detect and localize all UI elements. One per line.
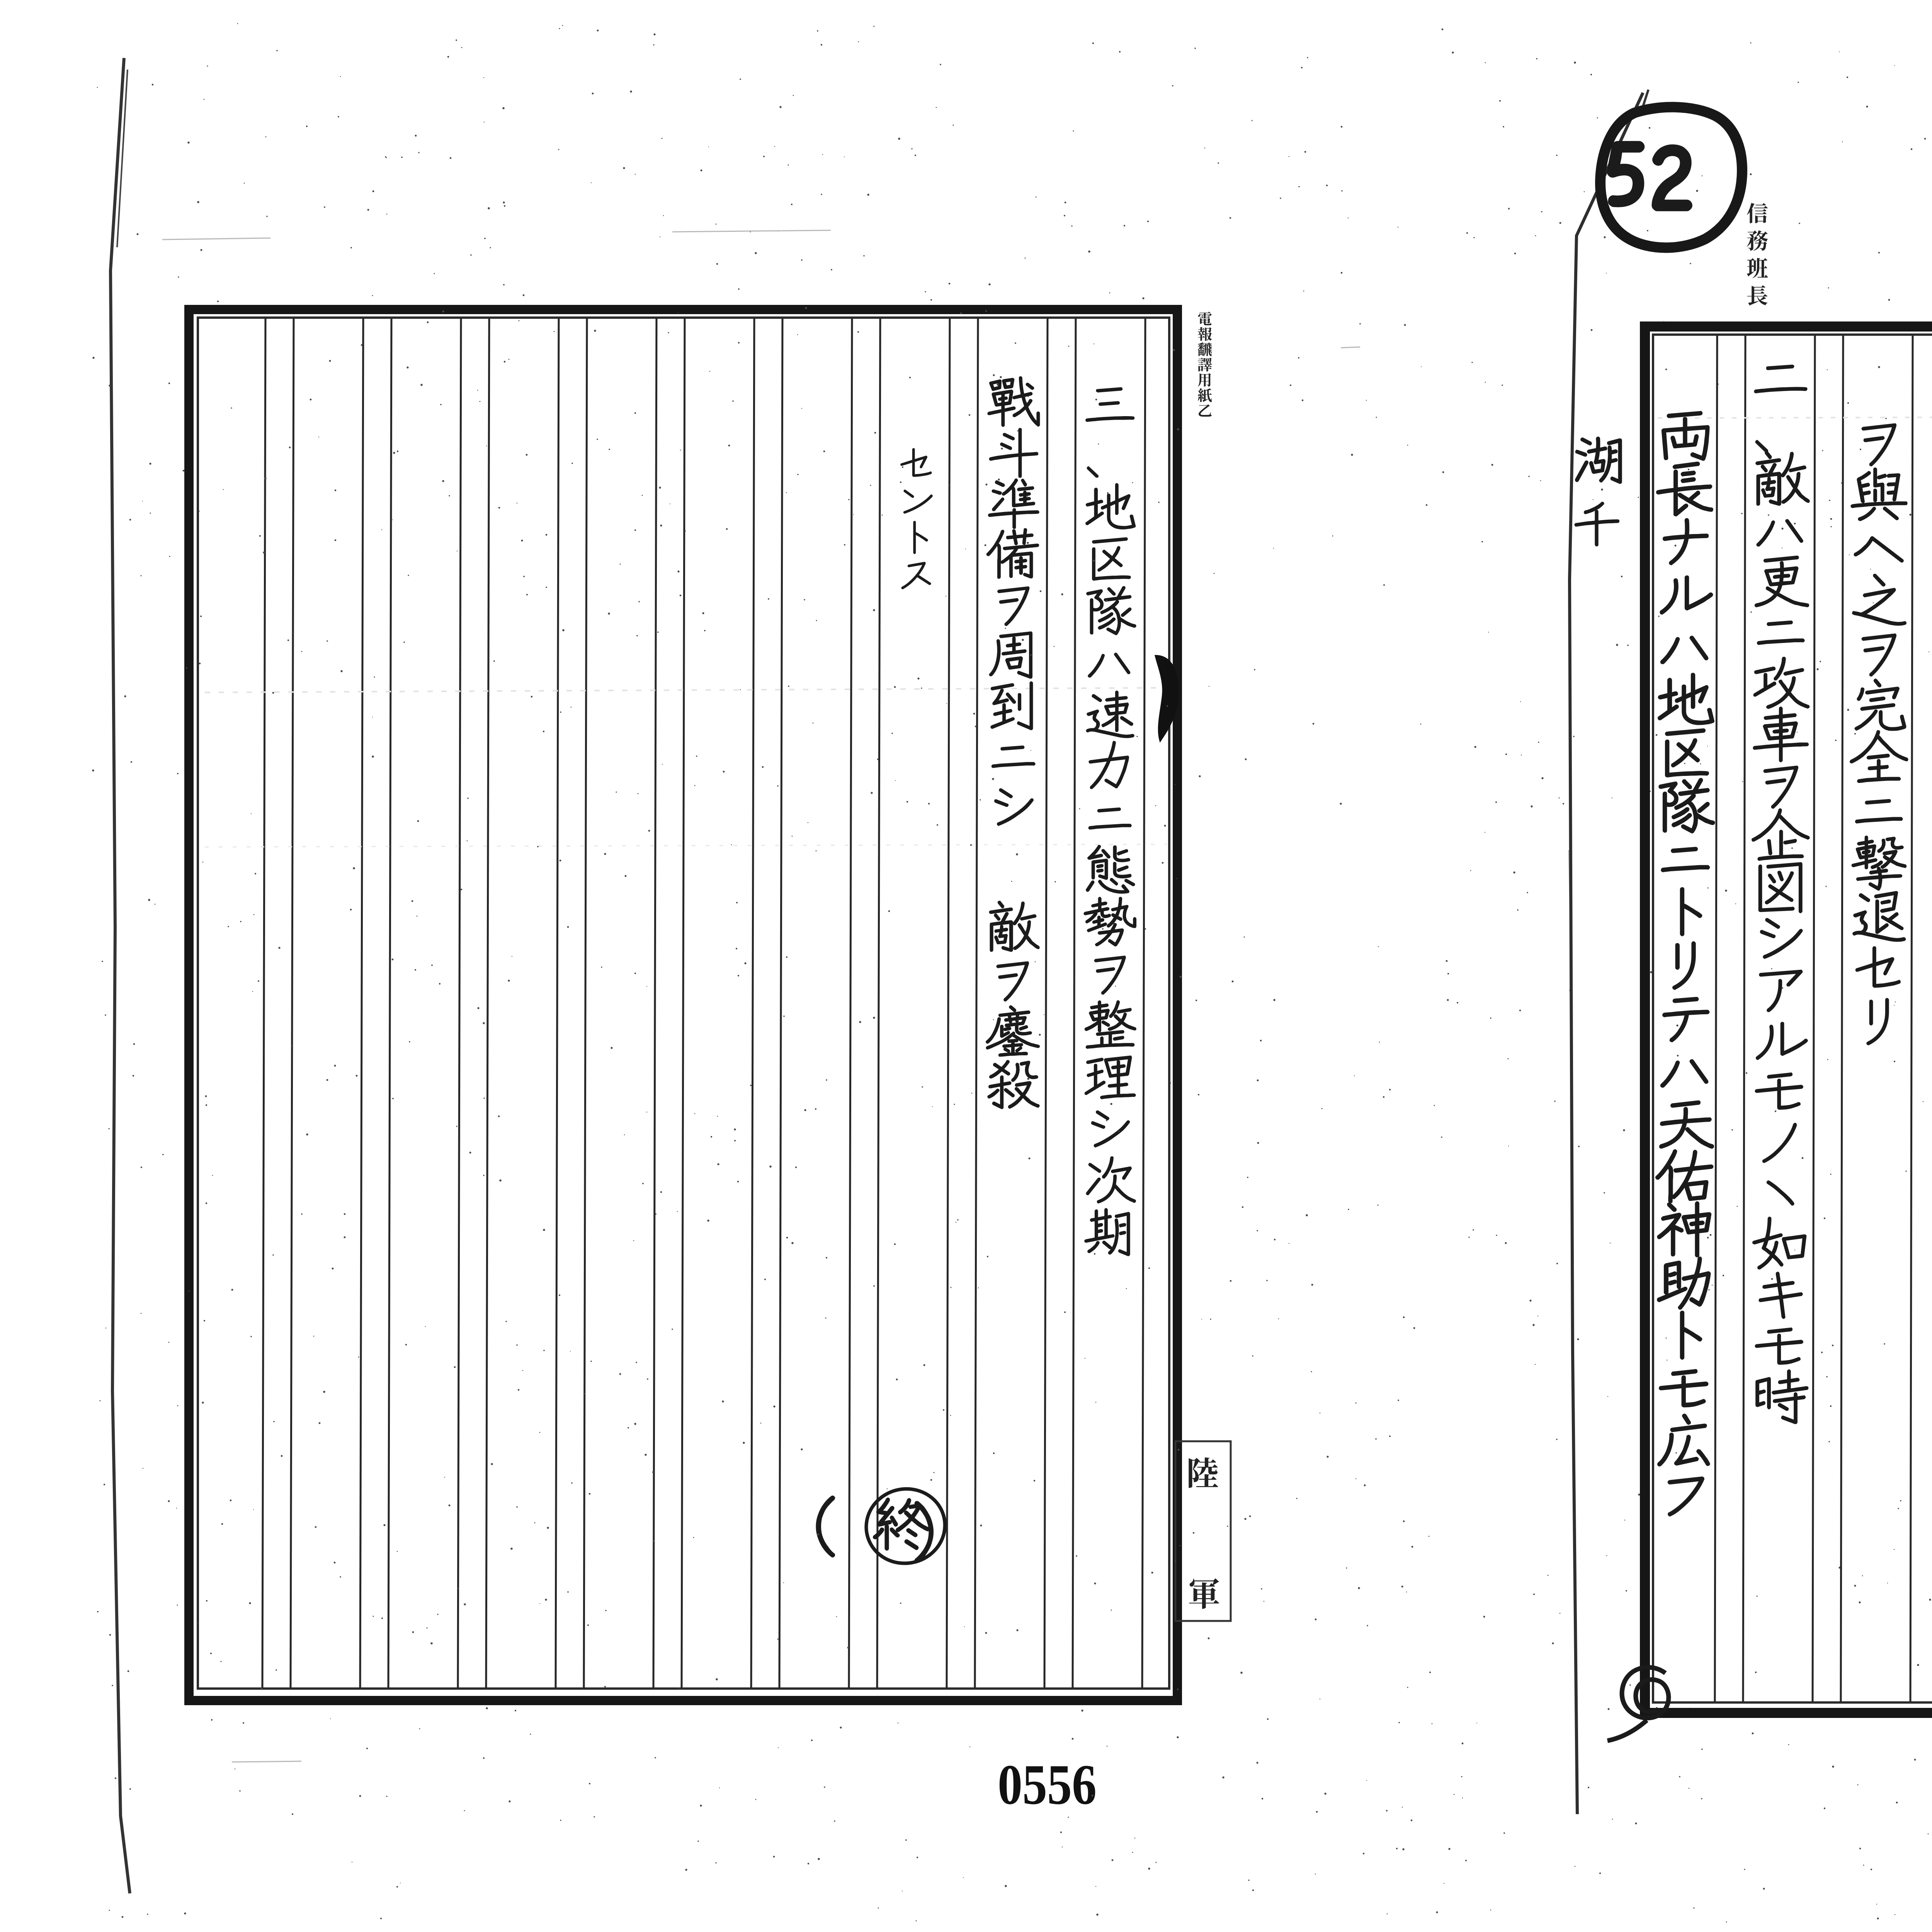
svg-text:0556: 0556 [998,1753,1097,1816]
